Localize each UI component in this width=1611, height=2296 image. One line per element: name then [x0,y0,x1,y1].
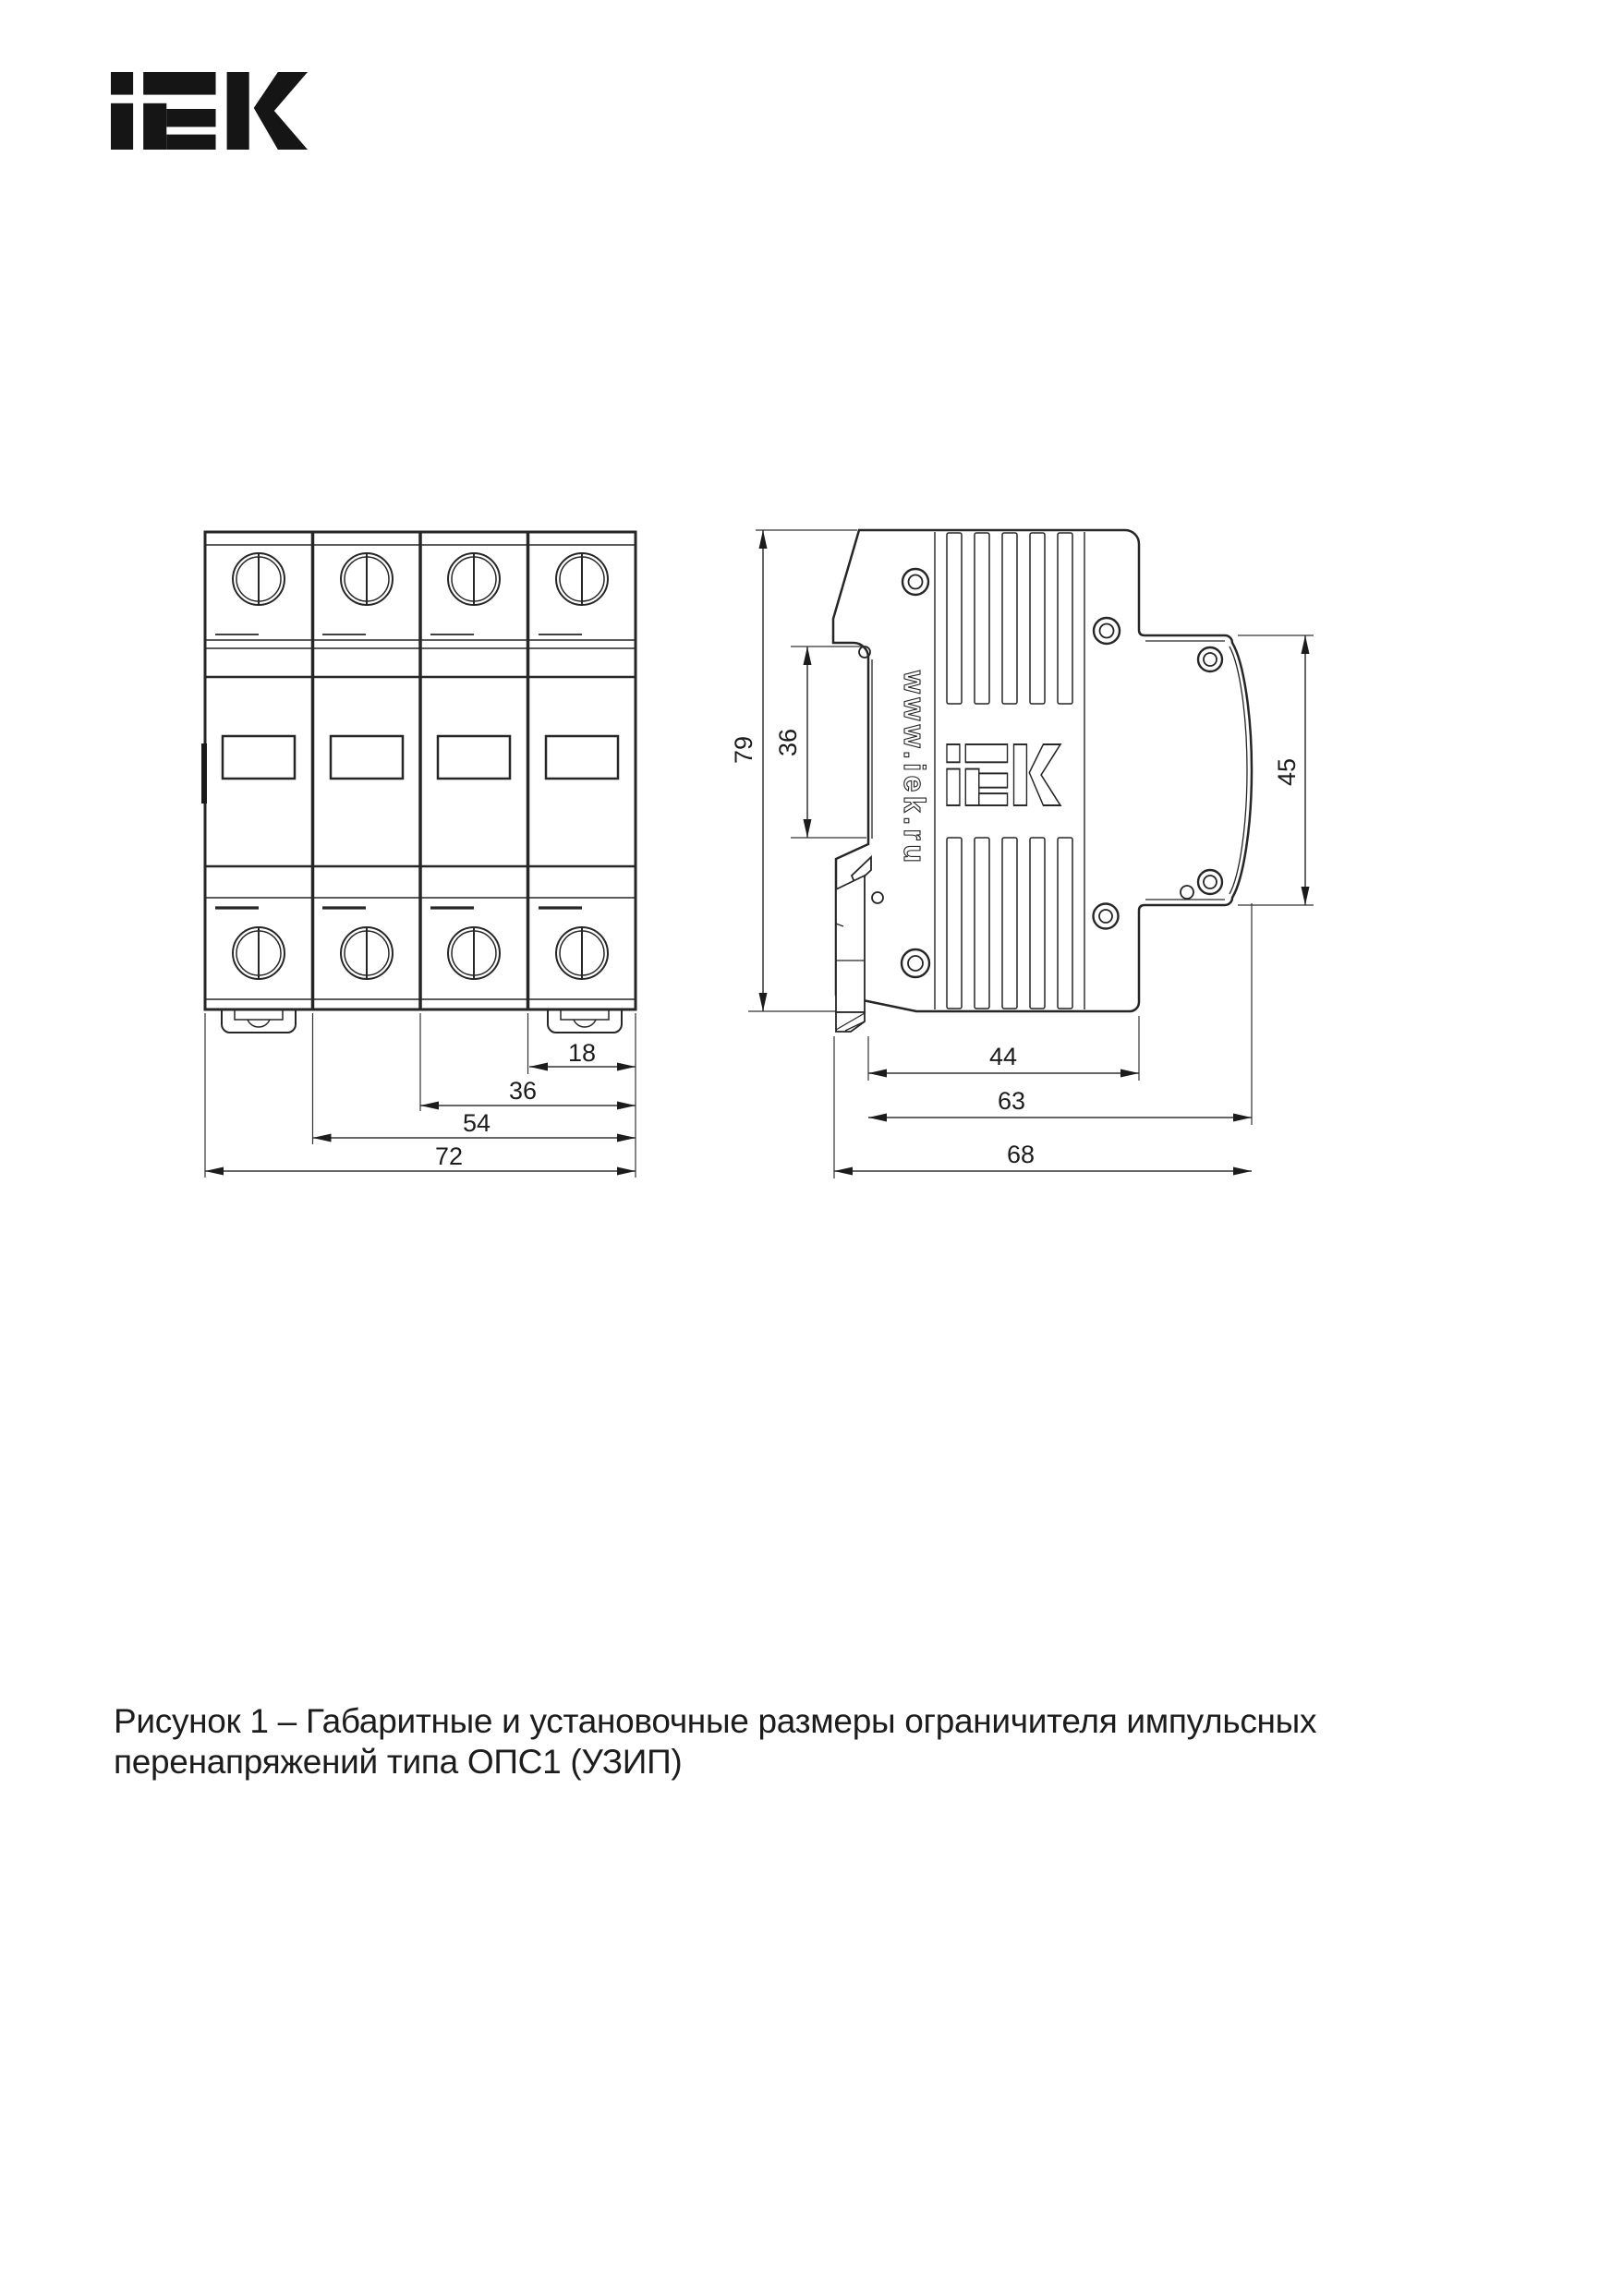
document-page: 18 36 54 72 [0,0,1611,2296]
dim-79: 79 [730,736,757,764]
dimension-drawing: 18 36 54 72 [0,0,1611,1293]
side-view: www.iek.ru [730,530,1314,1178]
side-seam [201,743,207,804]
dim-54: 54 [463,1109,491,1137]
vent-slots-bottom [947,838,1072,1009]
front-modules [215,553,618,979]
dim-36-side: 36 [774,729,802,756]
side-dimensions: 79 36 45 44 63 68 [730,530,1314,1178]
front-view: 18 36 54 72 [201,532,636,1178]
dim-45: 45 [1273,758,1301,786]
figure-caption: Рисунок 1 – Габаритные и установочные ра… [114,1701,1407,1783]
website-marking: www.iek.ru [898,670,931,863]
module-2 [322,553,403,979]
dim-63: 63 [998,1087,1025,1115]
side-rivets [902,569,1222,977]
figure-caption-line1: Рисунок 1 – Габаритные и установочные ра… [114,1701,1407,1742]
dim-44: 44 [989,1043,1017,1070]
module-4 [539,553,618,979]
label-window [331,736,403,779]
dim-72: 72 [435,1142,463,1170]
front-dimensions: 18 36 54 72 [205,1013,636,1178]
figure-caption-line2: перенапряжений типа ОПС1 (УЗИП) [114,1742,1407,1782]
pin-hole [1181,886,1193,899]
module-3 [430,553,510,979]
iek-logo-embossed [947,744,1060,805]
pin-hole [872,892,883,903]
dim-36-front: 36 [509,1077,537,1105]
dim-68: 68 [1007,1141,1035,1168]
din-clips [222,1009,622,1033]
label-window [546,736,618,779]
side-body-outline [833,530,1252,1011]
dim-18: 18 [568,1039,596,1067]
dimension-arrows [759,530,1310,1176]
flange-inner-lines [1145,641,1247,900]
vent-slots-top [947,533,1072,704]
module-1 [215,553,295,979]
din-latch [836,857,871,1032]
label-window [223,736,295,779]
label-window [438,736,510,779]
